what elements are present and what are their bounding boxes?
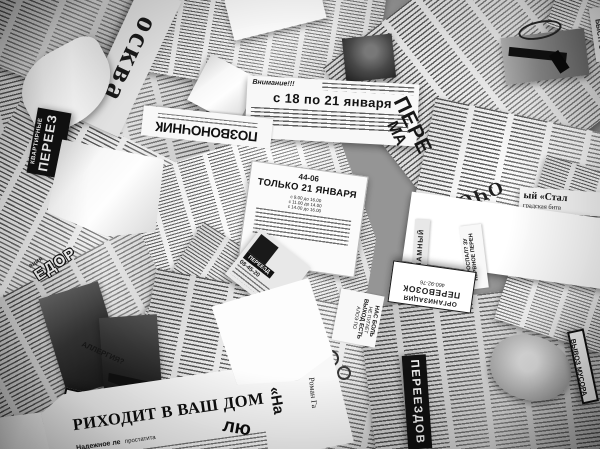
round-stamp <box>337 366 351 380</box>
relocations-text: ПЕРЕЕЗДОВ <box>408 359 426 445</box>
dark-photo <box>342 34 396 83</box>
prostatitis-text: простатита <box>125 435 156 445</box>
roman-line: Роман Га <box>307 377 319 409</box>
newspaper-collage: БЫСТРО осква КВАРТИРНЫЕ ПЕРЕЕЗ Внимание!… <box>0 0 600 449</box>
lyu-text: лю <box>221 415 253 441</box>
attention-text: Внимание!!! <box>252 79 294 88</box>
reliable-text: Надежное ле <box>76 439 121 449</box>
